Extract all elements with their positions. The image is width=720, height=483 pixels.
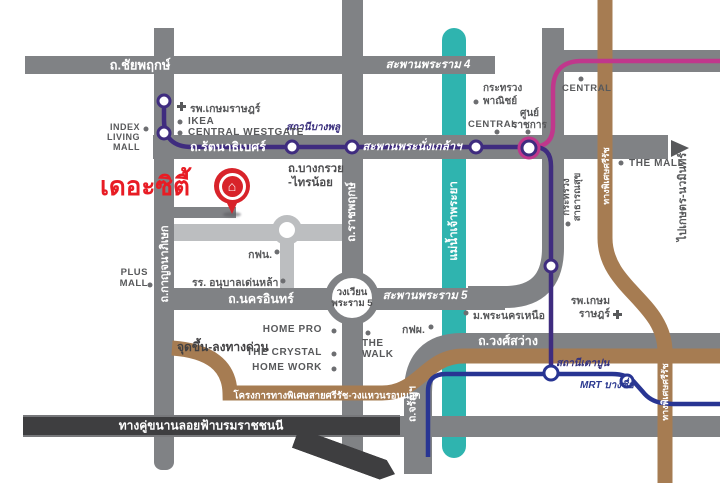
road-label-phra-nangklao-bridge: สะพานพระนั่งเกล้าฯ <box>362 138 461 156</box>
mrt-blue-line <box>428 374 720 457</box>
river-label: แม่น้ำเจ้าพระยา <box>445 181 463 261</box>
poi-dot <box>332 352 337 357</box>
poi-line: MALL <box>92 142 140 152</box>
poi-egat: กฟผ. <box>402 321 425 338</box>
poi-line: สาธารณสุข <box>572 173 583 221</box>
hospital-cross-icon <box>177 102 186 111</box>
poi-the-walk: THE WALK <box>362 338 393 360</box>
poi-dot <box>148 283 153 288</box>
road-label-borommaratchachonnani: ทางคู่ขนานลอยฟ้าบรมราชชนนี <box>119 417 284 436</box>
expressway-label-sirat-south: ทางพิเศษศรีรัช <box>658 363 672 421</box>
poi-the-mall: THE MALL <box>629 158 684 169</box>
poi-dot <box>178 120 183 125</box>
roundabout-label: วงเวียน พระราม 5 <box>317 287 387 309</box>
poi-central-rattanathibet: CENTRAL <box>468 119 518 130</box>
poi-line: กระทรวง <box>561 173 572 221</box>
poi-line: พาณิชย์ <box>483 95 522 108</box>
purple-line-station <box>157 126 172 141</box>
roundabout-line2: พระราม 5 <box>317 298 387 309</box>
home-icon: ⌂ <box>222 176 243 197</box>
poi-line: LIVING <box>92 132 140 142</box>
purple-line-station <box>544 259 559 274</box>
poi-mea: กฟน. <box>232 246 272 263</box>
road-label-nakhon-in: ถ.นครอินทร์ <box>228 289 294 309</box>
poi-line: รพ.เกษม <box>540 295 610 308</box>
purple-pink-interchange-station <box>521 140 538 157</box>
poi-dot <box>281 279 286 284</box>
sirat-expressway-south <box>605 0 665 483</box>
poi-dot <box>366 331 371 336</box>
poi-home-pro: HOME PRO <box>234 324 322 335</box>
poi-line: INDEX <box>92 122 140 132</box>
poi-home-work: HOME WORK <box>210 362 322 373</box>
poi-the-crystal: THE CRYSTAL <box>200 347 322 358</box>
poi-dot <box>464 311 469 316</box>
poi-dot <box>566 222 571 227</box>
purple-line-station <box>469 140 484 155</box>
tao-poon-station-label: สถานีเตาปูน <box>556 356 609 371</box>
road-label-wong-sawang: ถ.วงศ์สว่าง <box>478 331 538 351</box>
poi-line: WALK <box>362 349 393 360</box>
hospital-cross-icon <box>613 310 622 319</box>
road-label-charan: ถ.จรัญฯ <box>404 386 421 422</box>
road-label-sirat-outer-ring: โครงการทางพิเศษสายศรีรัช-วงแหวนรอบนอก <box>234 389 421 404</box>
road-label-chaiyaphruek: ถ.ชัยพฤกษ์ <box>110 55 171 76</box>
poi-line: กระทรวง <box>483 82 522 95</box>
poi-ministry-commerce: กระทรวง พาณิชย์ <box>483 82 522 108</box>
poi-dot <box>495 130 500 135</box>
purple-line-station <box>345 140 360 155</box>
road-label-tiwanon: ถ.ติวานนท์ <box>524 169 542 223</box>
poi-kasemrad-hospital-nw: รพ.เกษมราษฎร์ <box>190 100 260 117</box>
poi-line: ราษฎร์ <box>540 308 610 321</box>
poi-dot <box>178 131 183 136</box>
poi-index-living-mall: INDEX LIVING MALL <box>92 122 140 152</box>
poi-denla-school: รร. อนุบาลเด่นหล้า <box>192 274 278 291</box>
location-map: ถ.ชัยพฤกษ์ สะพานพระราม 4 ถ.รัตนาธิเบศร์ … <box>0 0 720 483</box>
poi-ikea: IKEA <box>188 116 214 127</box>
expressway-label-sirat-north: ทางพิเศษศรีรัช <box>599 147 613 205</box>
poi-plus-mall: PLUS MALL <box>100 268 148 289</box>
poi-dot <box>332 329 337 334</box>
poi-central-northeast: CENTRAL <box>562 83 612 94</box>
poi-kmutnb: ม.พระนครเหนือ <box>473 307 545 324</box>
road-label-rama5-bridge: สะพานพระราม 5 <box>383 287 468 305</box>
mrt-pink-line <box>534 61 720 147</box>
poi-kasemrad-hospital-se: รพ.เกษม ราษฎร์ <box>540 295 610 320</box>
road-label-bang-kruai-sai-noi: ถ.บางกรวย -ไทรน้อย <box>288 163 344 190</box>
poi-dot <box>579 77 584 82</box>
poi-dot <box>144 127 149 132</box>
bang-phlu-station-marker <box>285 140 300 155</box>
location-pin: ⌂ <box>214 168 250 218</box>
roundabout-line1: วงเวียน <box>317 287 387 298</box>
poi-dot <box>474 100 479 105</box>
pin-inner-ring: ⌂ <box>219 173 246 200</box>
poi-dot <box>332 367 337 372</box>
purple-line-station <box>157 94 172 109</box>
road-label-rama4-bridge: สะพานพระราม 4 <box>386 56 471 74</box>
road-label-ratchaphruek: ถ.ราชพฤกษ์ <box>343 182 361 242</box>
poi-dot <box>429 325 434 330</box>
poi-line: PLUS <box>100 268 148 279</box>
poi-line: MALL <box>100 279 148 290</box>
poi-line: THE <box>362 338 393 349</box>
label-line: -ไทรน้อย <box>288 177 344 191</box>
poi-dot <box>275 250 280 255</box>
road-label-kanchanaphisek: ถ.กาญจนาภิเษก <box>155 226 173 303</box>
brand-logo-text: เดอะซิตี้ <box>100 166 190 207</box>
poi-dot <box>619 161 624 166</box>
bang-sue-station-label: MRT บางซื่อ <box>580 378 634 393</box>
road-label-rattanathibet: ถ.รัตนาธิเบศร์ <box>190 137 266 157</box>
poi-dot <box>526 130 531 135</box>
label-line: ถ.บางกรวย <box>288 163 344 177</box>
poi-ministry-public-health: กระทรวง สาธารณสุข <box>561 173 583 221</box>
pin-circle: ⌂ <box>214 168 250 204</box>
poi-central-westgate: CENTRAL WESTGATE <box>188 127 304 138</box>
